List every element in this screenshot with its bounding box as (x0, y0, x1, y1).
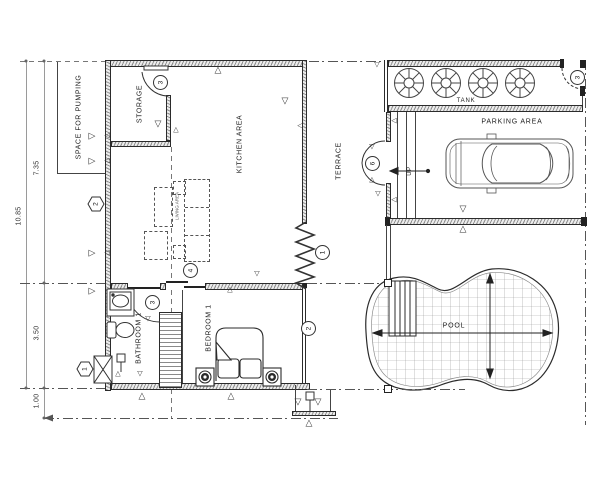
gate-symbol (306, 392, 314, 411)
level-marker-icon: ▽ (254, 271, 259, 278)
level-marker-icon: △ (369, 177, 374, 184)
level-marker-icon: △ (306, 419, 313, 428)
folding-door (296, 222, 314, 289)
level-marker-icon: ▽ (315, 398, 322, 407)
level-marker-icon: ◁ (104, 250, 109, 257)
floor-plan-canvas: 10.85 7.35 3.50 1.00 (0, 0, 606, 491)
pool-shape (355, 255, 570, 405)
car (446, 134, 573, 193)
level-marker-icon: △ (460, 225, 467, 234)
drawing-layer (0, 0, 606, 491)
column (384, 385, 392, 393)
callout-living: 4 (183, 263, 198, 278)
bed (216, 328, 263, 381)
callout-bedroom-window: 2 (301, 321, 316, 336)
level-marker-icon: ◁ (104, 158, 109, 165)
level-marker-icon: △ (115, 371, 120, 378)
pool-steps (389, 281, 416, 336)
shower (94, 356, 112, 383)
callout-folding-door: 1 (315, 245, 330, 260)
bathroom-drain (117, 354, 125, 372)
callout-tank-door: 3 (570, 70, 585, 85)
level-marker-icon: ◁ (104, 133, 109, 140)
level-marker-icon: ▽ (282, 97, 289, 106)
level-marker-icon: ▽ (369, 144, 374, 151)
level-marker-icon: ▽ (137, 371, 142, 378)
level-marker-icon: ▽ (145, 316, 150, 323)
level-marker-icon: ▷ (89, 249, 96, 258)
column (384, 279, 392, 287)
level-marker-icon: ▽ (155, 120, 162, 129)
callout-storage-door: 3 (153, 75, 168, 90)
dim-arrow (44, 415, 53, 422)
level-marker-icon: ◁ (391, 197, 396, 204)
level-marker-icon: ▷ (89, 287, 96, 296)
level-marker-icon: △ (215, 66, 222, 75)
level-marker-icon: ◁ (297, 123, 302, 130)
level-marker-icon: ▽ (375, 191, 380, 198)
bathroom-sink (107, 289, 134, 316)
nightstand-left (196, 368, 214, 386)
level-marker-icon: △ (227, 287, 232, 294)
level-marker-icon: ▽ (374, 62, 379, 69)
level-marker-icon: ▷ (89, 157, 96, 166)
level-marker-icon: ◁ (391, 118, 396, 125)
toilet (107, 322, 134, 338)
nightstand-right (263, 368, 281, 386)
level-marker-icon: ▽ (460, 205, 467, 214)
callout-terrace-door: 6 (365, 156, 380, 171)
level-marker-icon: ▷ (89, 132, 96, 141)
level-marker-icon: △ (139, 392, 146, 401)
level-marker-icon: △ (173, 127, 178, 134)
tank-circles (395, 69, 535, 98)
level-marker-icon: △ (228, 392, 235, 401)
callout-bathroom-door: 3 (145, 295, 160, 310)
level-marker-icon: ▽ (295, 398, 302, 407)
